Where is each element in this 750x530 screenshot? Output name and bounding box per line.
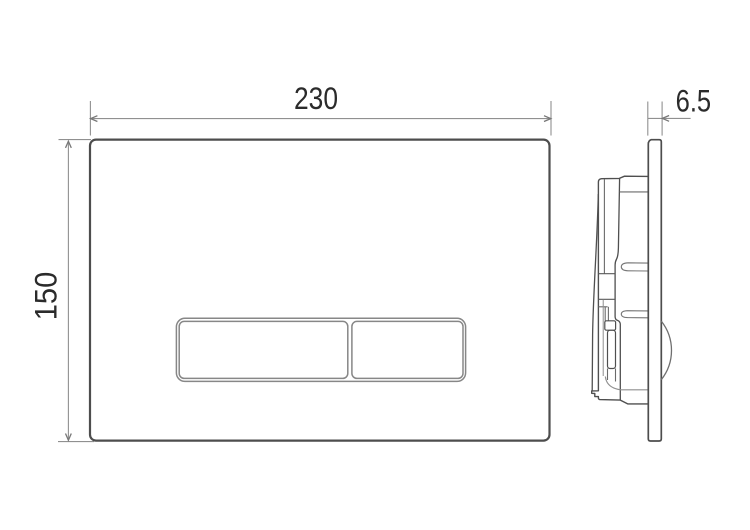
svg-text:150: 150: [28, 272, 64, 321]
svg-text:6.5: 6.5: [676, 83, 712, 119]
svg-text:230: 230: [294, 80, 338, 116]
